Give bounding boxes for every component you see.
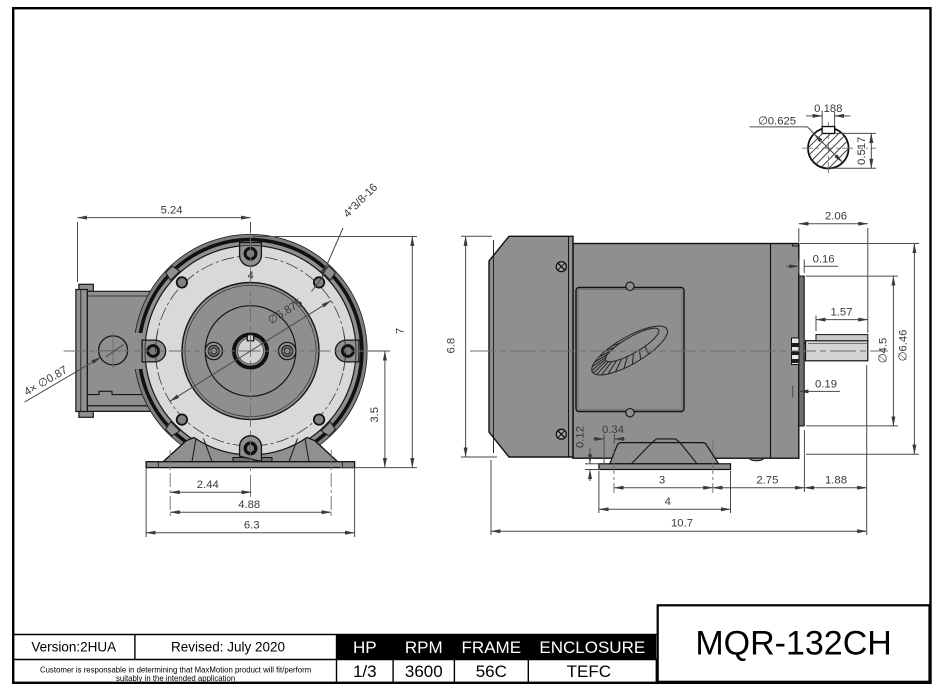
svg-text:7: 7: [395, 328, 407, 334]
svg-text:3: 3: [659, 475, 665, 487]
svg-text:MQR-132CH: MQR-132CH: [695, 625, 891, 663]
svg-text:1.88: 1.88: [825, 475, 847, 487]
svg-text:∅4.5: ∅4.5: [878, 338, 890, 364]
svg-text:0.16: 0.16: [813, 253, 835, 265]
svg-text:0.19: 0.19: [815, 378, 837, 390]
svg-text:3.5: 3.5: [369, 407, 381, 423]
svg-text:Version:2HUA: Version:2HUA: [31, 640, 116, 655]
svg-text:ENCLOSURE: ENCLOSURE: [539, 638, 645, 657]
svg-text:2.06: 2.06: [825, 211, 847, 223]
svg-text:10.7: 10.7: [671, 517, 693, 529]
svg-text:Revised: July 2020: Revised: July 2020: [171, 640, 285, 655]
svg-text:4: 4: [248, 270, 254, 282]
svg-text:2.44: 2.44: [197, 479, 219, 491]
svg-text:0.188: 0.188: [814, 103, 842, 115]
svg-text:0.12: 0.12: [575, 426, 587, 448]
svg-text:RPM: RPM: [405, 638, 443, 657]
svg-text:suitably in the intended appli: suitably in the intended application: [116, 674, 235, 683]
svg-text:0.34: 0.34: [602, 424, 624, 436]
svg-text:1/3: 1/3: [353, 662, 377, 681]
svg-text:∅6.46: ∅6.46: [898, 330, 910, 362]
svg-text:4: 4: [665, 496, 671, 508]
svg-text:TEFC: TEFC: [567, 662, 611, 681]
svg-text:56C: 56C: [476, 662, 507, 681]
svg-text:2.75: 2.75: [756, 475, 778, 487]
svg-text:5.24: 5.24: [161, 204, 183, 216]
svg-text:3600: 3600: [405, 662, 443, 681]
svg-text:4.88: 4.88: [238, 499, 260, 511]
svg-text:0.517: 0.517: [856, 137, 868, 165]
svg-text:HP: HP: [353, 638, 377, 657]
svg-text:6.8: 6.8: [446, 338, 458, 354]
svg-text:6.3: 6.3: [244, 519, 260, 531]
svg-text:∅0.625: ∅0.625: [758, 116, 796, 128]
svg-text:1.57: 1.57: [831, 306, 853, 318]
svg-text:FRAME: FRAME: [462, 638, 522, 657]
